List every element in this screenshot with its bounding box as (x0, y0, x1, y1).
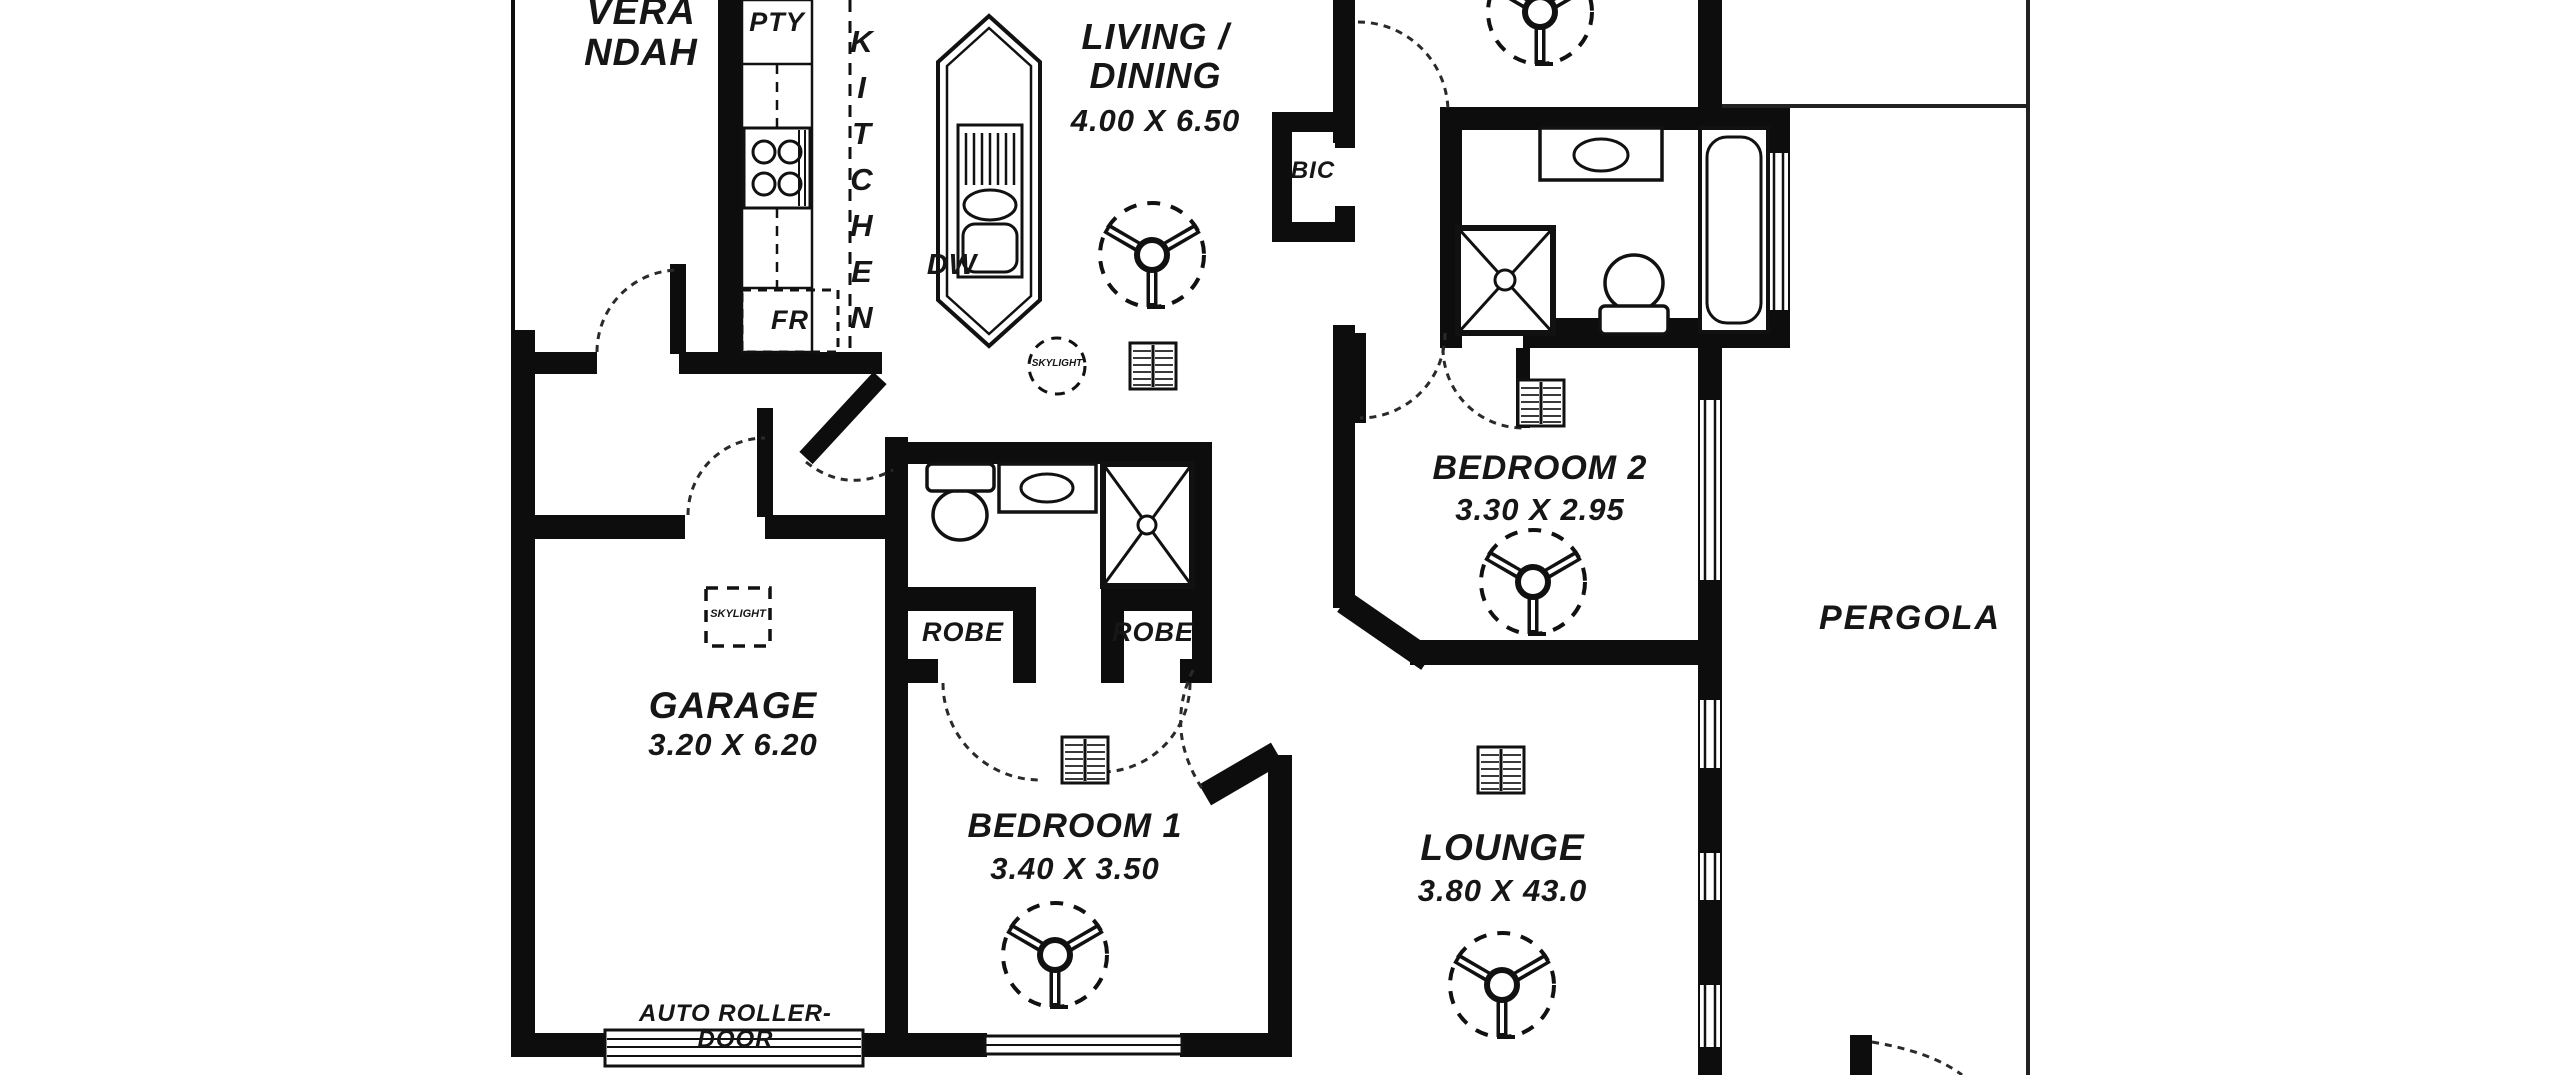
basin (1574, 139, 1628, 171)
lounge-window-2 (1700, 853, 1720, 900)
lounge-window-3 (1700, 985, 1720, 1047)
pergola-door-arc (1872, 1042, 1962, 1075)
floor-plan: VERA NDAH PTY KITCHEN FR DW LIVING / DIN… (0, 0, 2560, 1075)
bedroom2-vent-icon (1518, 380, 1564, 426)
bedroom1-vent-icon (1062, 737, 1108, 783)
garage-top-wall-b (765, 515, 885, 539)
verandah-bottom-wall-a (511, 352, 597, 374)
lounge-label: LOUNGE (1400, 828, 1605, 868)
island-bench (938, 16, 1040, 346)
lounge-vent-icon (1478, 747, 1524, 793)
shower-drain (1138, 516, 1156, 534)
bathroom-fixtures (1458, 128, 1768, 334)
garage-dims: 3.20 X 6.20 (633, 728, 833, 761)
bathtub (1700, 128, 1768, 332)
bedroom2-bottom-wall (1410, 640, 1700, 665)
garage-door-leaf (757, 408, 773, 517)
living-ceiling-fan-icon (1100, 203, 1204, 307)
kitchen-verandah-wall (718, 0, 742, 354)
lounge-window-1 (1700, 700, 1720, 768)
toilet-bowl (933, 490, 987, 540)
auto-roller-door-label: AUTO ROLLER-DOOR (608, 1001, 863, 1053)
pergola-top-line (1722, 104, 2030, 108)
lounge-ceiling-fan-icon (1450, 933, 1554, 1037)
bedroom2-chamfer-wall (1344, 602, 1428, 660)
bathroom-door-arc (1443, 348, 1523, 428)
garage-top-wall-a (535, 515, 685, 539)
living-dining-line1: LIVING / (1048, 18, 1263, 57)
garage-label: GARAGE (633, 686, 833, 726)
bedroom1-ceiling-fan-icon (1003, 903, 1107, 1007)
fridge-label: FR (750, 306, 830, 335)
top-room-right-wall (1698, 0, 1722, 110)
bedroom1-window (985, 1036, 1182, 1054)
bedroom1-label: BEDROOM 1 (955, 808, 1195, 845)
living-vent-icon (1130, 343, 1176, 389)
toilet-bowl (1605, 255, 1663, 311)
cooktop (744, 128, 810, 208)
ensuite-vanity (999, 464, 1096, 512)
bottom-wall-b (863, 1033, 987, 1057)
verandah-door-leaf (670, 264, 686, 354)
top-room-door-arc (1358, 22, 1448, 112)
living-dining-dims: 4.00 X 6.50 (1048, 104, 1263, 137)
bedroom2-window (1700, 400, 1720, 580)
bedroom2-label: BEDROOM 2 (1420, 450, 1660, 487)
robe-left-door-arc (943, 683, 1040, 780)
bottom-wall-a (511, 1033, 607, 1057)
living-dining-line2: DINING (1048, 57, 1263, 96)
sink-bowl (964, 190, 1016, 220)
ensuite-shower (1103, 464, 1192, 586)
robe-left-stub (908, 659, 938, 683)
sink-drainer (966, 133, 1014, 185)
bic-label: BIC (1283, 158, 1343, 184)
verandah-bottom-wall-b (679, 352, 882, 374)
bedroom2-door-leaf (1350, 333, 1366, 423)
hall-top-wall (1333, 0, 1355, 143)
robe-right-stub (1180, 659, 1212, 683)
bathroom-toilet (1600, 255, 1668, 334)
entry-door-arc (806, 462, 893, 480)
garage-door-arc (688, 438, 765, 515)
verandah-edge-line (511, 0, 515, 354)
verandah-label: VERA NDAH (566, 0, 716, 74)
living-dining-label: LIVING / DINING 4.00 X 6.50 (1048, 18, 1263, 137)
toilet-tank (1600, 306, 1668, 334)
pantry-label: PTY (744, 8, 810, 37)
robe-left-right-wall (1013, 587, 1036, 683)
bedroom1-door-arc (1181, 670, 1203, 790)
bathroom-shower (1458, 228, 1553, 333)
bedroom2-door-arc (1360, 333, 1445, 418)
dishwasher-label: DW (912, 250, 992, 281)
ensuite-fixtures (927, 464, 1192, 586)
toilet-tank (927, 464, 994, 491)
living-skylight-label: SKYLIGHT (1026, 359, 1088, 370)
bedroom1-dims: 3.40 X 3.50 (955, 852, 1195, 885)
bathroom-window (1769, 153, 1788, 310)
shower-drain (1495, 270, 1515, 290)
garage-right-wall (885, 437, 908, 1057)
lounge-dims: 3.80 X 43.0 (1400, 874, 1605, 907)
kitchen-fixtures (742, 0, 1040, 352)
top-room-ceiling-fan-icon (1488, 0, 1592, 64)
pergola-right-line (2026, 0, 2030, 1075)
bic-right-stub-b (1335, 206, 1355, 242)
bedroom2-ceiling-fan-icon (1481, 530, 1585, 634)
bedroom1-chamfer-wall (1205, 753, 1277, 795)
pergola-label: PERGOLA (1805, 600, 2015, 637)
ensuite-top-wall (908, 442, 1212, 464)
verandah-door-arc (597, 270, 679, 352)
robe-right-label: ROBE (1103, 618, 1203, 647)
robe-left-label: ROBE (913, 618, 1013, 647)
basin (1021, 474, 1073, 502)
bedroom2-dims: 3.30 X 2.95 (1420, 493, 1660, 526)
bedroom1-lounge-wall (1268, 755, 1292, 1057)
bathroom-vanity (1540, 128, 1662, 180)
kitchen-label: KITCHEN (846, 24, 877, 346)
garage-left-wall (511, 330, 535, 1057)
robe-right-door-arc (1101, 683, 1190, 772)
pergola-door-post (1850, 1035, 1872, 1075)
garage-skylight-label: SKYLIGHT (705, 609, 771, 621)
entry-door-leaf-diagonal (806, 378, 880, 458)
robe-left-top-wall (908, 587, 1013, 611)
ensuite-toilet (927, 464, 994, 540)
floor-plan-drawing (0, 0, 2560, 1075)
